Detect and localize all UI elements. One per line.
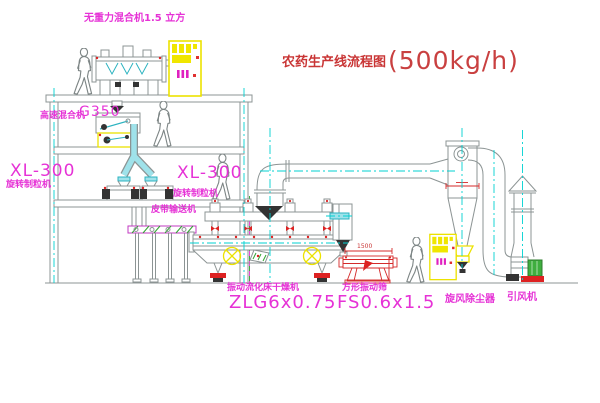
exhaust-duct: [254, 159, 448, 206]
title-capacity: (500kg/h): [388, 46, 519, 75]
control-cabinet-icon: [169, 41, 201, 96]
title-text: 农药生产线流程图: [282, 51, 386, 70]
induced-draft-fan: [506, 257, 544, 282]
label-hs-mixer-model: G350: [79, 105, 121, 119]
label-dryer-model: ZLG6x0.75: [229, 294, 337, 312]
cad-flow-diagram: .s{stroke:#8c9494;fill:none;stroke-width…: [0, 0, 600, 403]
label-sieve-model: FS0.6x1.5: [337, 294, 435, 312]
label-granulator-right: 旋转制粒机: [173, 190, 218, 199]
downcomer-duct: [483, 175, 512, 277]
diagram-title: 农药生产线流程图 (500kg/h): [282, 46, 519, 75]
label-belt-conveyor: 皮带输送机: [151, 206, 196, 215]
person-icon: [74, 48, 91, 94]
label-xl300-left: XL-300: [10, 163, 75, 180]
dimension-1500: 1500: [357, 244, 372, 250]
person-icon: [407, 237, 424, 282]
label-fan: 引风机: [507, 293, 537, 303]
label-gravity-mixer: 无重力混合机1.5 立方: [84, 14, 185, 24]
person-icon: [154, 101, 171, 146]
granulator-right: [140, 177, 173, 200]
belt-conveyor: [128, 226, 196, 282]
gravity-free-mixer: [92, 46, 174, 95]
vibrating-sieve: [339, 248, 397, 283]
label-cyclone: 旋风除尘器: [445, 295, 495, 305]
granulator-left: [102, 177, 140, 200]
discharge-chute: [132, 207, 146, 226]
label-xl300-right: XL-300: [177, 165, 242, 182]
control-cabinet-icon: [430, 234, 456, 279]
label-granulator-left: 旋转制粒机: [6, 181, 51, 190]
